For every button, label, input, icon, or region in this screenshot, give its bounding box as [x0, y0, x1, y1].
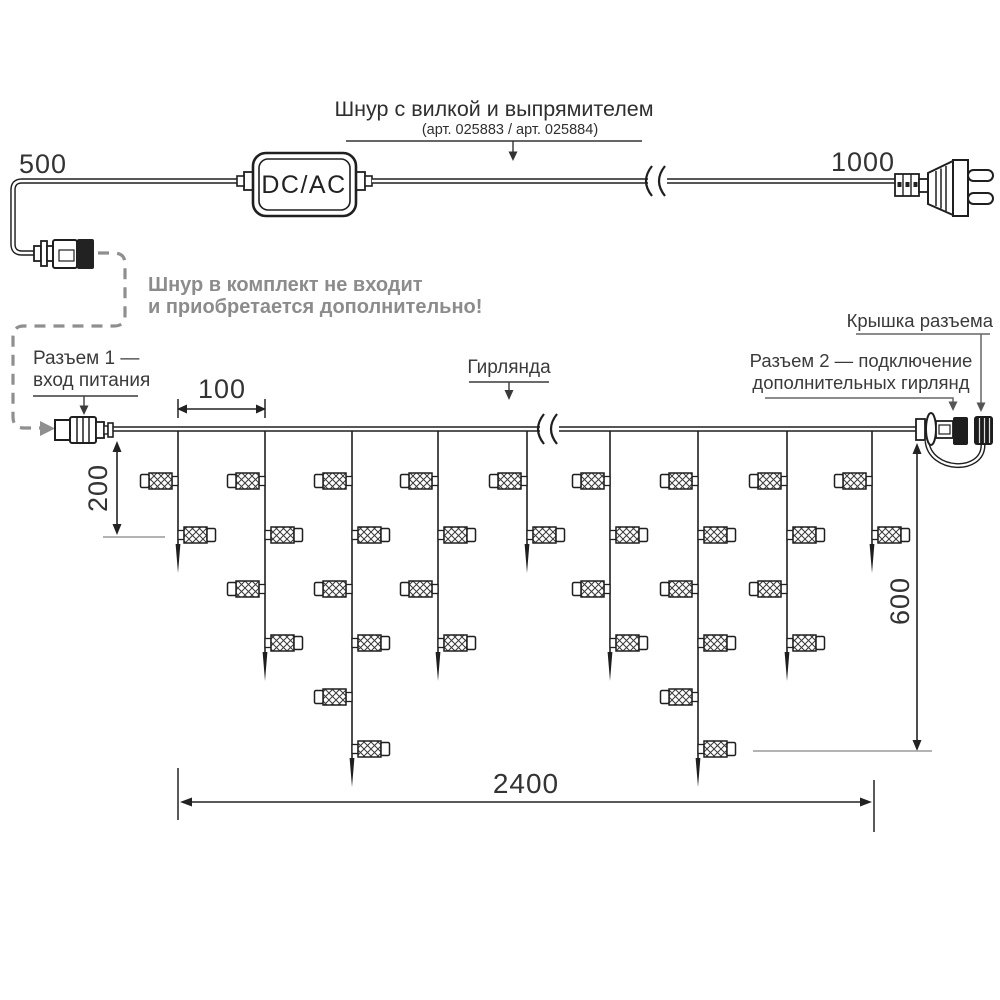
power-cord-assembly: 500 DC/AC [13, 97, 993, 269]
dim-200-label: 200 [83, 464, 113, 512]
lamp-right-icon [352, 741, 390, 757]
lamp-right-icon [698, 527, 736, 543]
connector-cap-label: Крышка разъема [847, 310, 994, 331]
lamp-right-icon [265, 635, 303, 651]
garland-drop [490, 431, 565, 573]
lamp-left-icon [661, 689, 699, 705]
garland-label: Гирлянда [467, 357, 551, 378]
lamp-right-icon [610, 527, 648, 543]
connector2-label-line2: дополнительных гирлянд [752, 372, 969, 393]
arrow-left-icon [180, 798, 192, 807]
lamp-left-icon [228, 581, 266, 597]
cord-title-callout: Шнур с вилкой и выпрямителем (арт. 02588… [334, 97, 653, 161]
lamp-left-icon [750, 581, 788, 597]
garland-drop [141, 431, 216, 573]
lamp-left-icon [141, 473, 179, 489]
lamp-right-icon [352, 527, 390, 543]
arrow-right-icon [860, 798, 872, 807]
dc-ac-adapter: DC/AC [237, 153, 372, 216]
connector1-label-line1: Разъем 1 — [33, 348, 139, 369]
connector-black-cap [77, 239, 94, 269]
arrow-up-icon [113, 441, 122, 452]
arrow-down-icon [80, 406, 89, 416]
lamp-left-icon [490, 473, 528, 489]
lamp-left-icon [315, 473, 353, 489]
dim-600-label: 600 [885, 577, 915, 625]
lamp-right-icon [787, 635, 825, 651]
arrow-down-icon [977, 403, 986, 413]
garland-drop [750, 431, 825, 681]
mains-plug-icon [895, 160, 993, 216]
garland-callout: Гирлянда [467, 357, 551, 400]
arrow-down-icon [509, 152, 518, 162]
lamp-right-icon [527, 527, 565, 543]
lamp-left-icon [401, 473, 439, 489]
lamp-left-icon [750, 473, 788, 489]
lamp-right-icon [698, 635, 736, 651]
gray-arrow-right-icon [40, 421, 55, 436]
arrow-down-icon [505, 390, 514, 400]
lamp-left-icon [401, 581, 439, 597]
dashed-connection-path [13, 253, 125, 428]
cord-subtitle: (арт. 025883 / арт. 025884) [422, 122, 598, 138]
garland-drop [573, 431, 648, 681]
lamp-left-icon [573, 473, 611, 489]
connector2 [916, 413, 993, 466]
connector1 [55, 417, 113, 443]
lamp-right-icon [438, 635, 476, 651]
lamp-left-icon [228, 473, 266, 489]
lamp-left-icon [835, 473, 873, 489]
connector1-label-line2: вход питания [33, 370, 150, 391]
garland-drops [141, 431, 910, 787]
dim-total-length: 2400 [178, 768, 874, 832]
note-line2: и приобретается дополнительно! [148, 296, 482, 318]
dc-output-connector [34, 239, 94, 269]
arrow-down-icon [113, 524, 122, 535]
dim-100-label: 100 [198, 374, 246, 404]
dim-drop-spacing: 100 [177, 374, 266, 418]
lamp-left-icon [661, 473, 699, 489]
lamp-left-icon [573, 581, 611, 597]
diagram-page: 500 DC/AC [0, 0, 1000, 1000]
adapter-label: DC/AC [261, 171, 346, 199]
garland-diagram: 500 DC/AC [0, 0, 1000, 1000]
lamp-left-icon [315, 581, 353, 597]
connector2-label-line1: Разъем 2 — подключение [750, 350, 973, 371]
lamp-right-icon [872, 527, 910, 543]
garland-drop [315, 431, 390, 787]
connector1-callout: Разъем 1 — вход питания [33, 348, 150, 415]
note-line1: Шнур в комплект не входит [148, 274, 423, 296]
garland-assembly [55, 413, 993, 787]
connector-cap [974, 416, 993, 445]
cable-left [13, 181, 248, 253]
lamp-right-icon [610, 635, 648, 651]
lamp-right-icon [178, 527, 216, 543]
lamp-right-icon [787, 527, 825, 543]
wire-break-icon [538, 414, 557, 444]
garland-drop [228, 431, 303, 681]
lamp-left-icon [661, 581, 699, 597]
arrow-down-icon [949, 402, 958, 412]
connector2-callout: Разъем 2 — подключение дополнительных ги… [750, 350, 973, 411]
dim-2400-label: 2400 [493, 768, 559, 799]
garland-drop [835, 431, 910, 573]
lamp-right-icon [438, 527, 476, 543]
arrow-down-icon [913, 740, 922, 751]
cable-break-icon [646, 166, 665, 196]
lamp-right-icon [698, 741, 736, 757]
lamp-right-icon [265, 527, 303, 543]
cord-title: Шнур с вилкой и выпрямителем [334, 97, 653, 121]
dim-cord-left: 500 [19, 149, 67, 179]
garland-drop [401, 431, 476, 681]
arrow-up-icon [913, 443, 922, 454]
lamp-right-icon [352, 635, 390, 651]
garland-drop [661, 431, 736, 787]
dim-cord-right: 1000 [831, 147, 895, 177]
lamp-left-icon [315, 689, 353, 705]
